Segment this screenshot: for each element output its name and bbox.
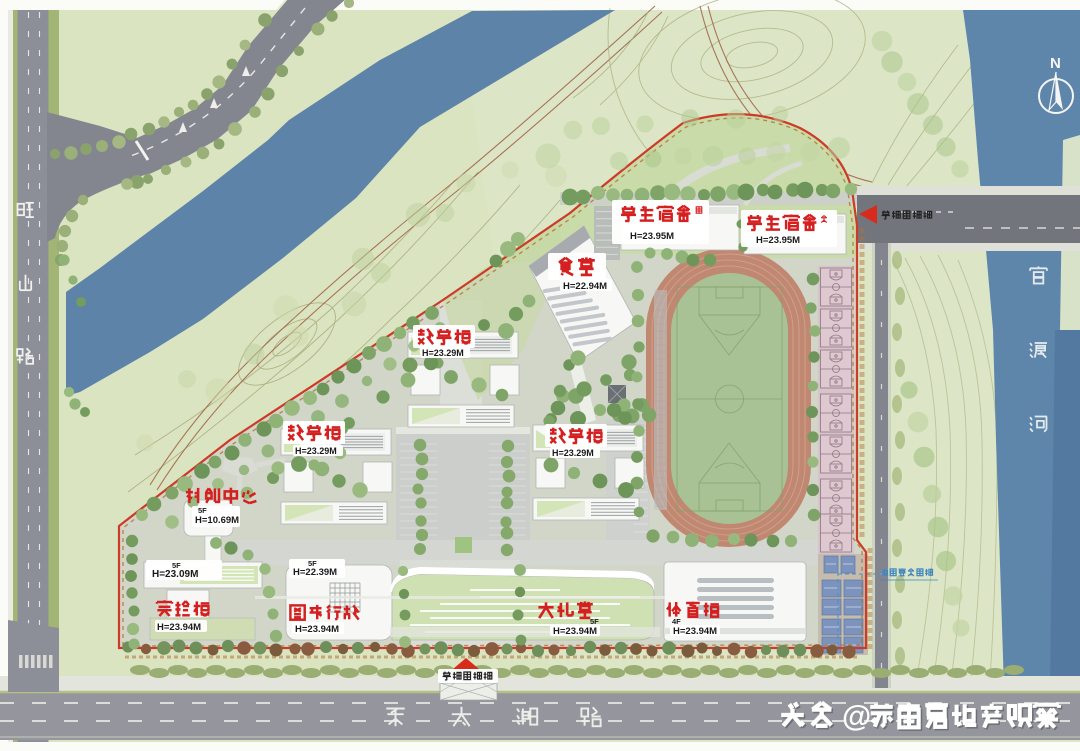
svg-text:H=22.39M: H=22.39M <box>293 567 337 578</box>
svg-text:N: N <box>1050 55 1061 72</box>
svg-text:H=23.95M: H=23.95M <box>756 235 800 246</box>
svg-text:H=22.94M: H=22.94M <box>563 281 607 292</box>
svg-text:H=23.95M: H=23.95M <box>630 231 674 242</box>
svg-text:5F: 5F <box>590 617 599 626</box>
svg-text:H=23.29M: H=23.29M <box>295 446 337 456</box>
svg-text:H=23.94M: H=23.94M <box>295 624 339 635</box>
svg-text:H=23.29M: H=23.29M <box>422 348 464 358</box>
svg-text:H=23.94M: H=23.94M <box>673 626 717 637</box>
svg-text:5F: 5F <box>198 506 207 515</box>
svg-text:4F: 4F <box>672 617 681 626</box>
svg-text:H=23.94M: H=23.94M <box>553 626 597 637</box>
svg-text:H=23.29M: H=23.29M <box>552 448 594 458</box>
svg-text:H=23.09M: H=23.09M <box>152 569 198 580</box>
svg-text:H=23.94M: H=23.94M <box>157 622 201 633</box>
svg-text:@: @ <box>842 700 871 733</box>
svg-text:H=10.69M: H=10.69M <box>195 515 239 526</box>
